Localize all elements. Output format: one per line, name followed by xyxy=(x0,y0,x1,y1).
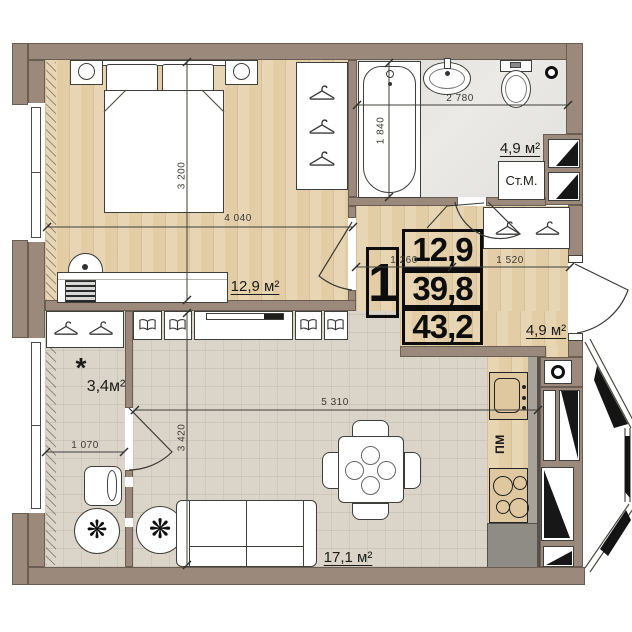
living-area-value: 17,1 м² xyxy=(324,549,373,566)
hallway-area-label: 4,9 м² xyxy=(522,322,570,339)
dim-bedroom-width: 4 040 xyxy=(213,213,263,224)
bedroom-area-label: 12,9 м² xyxy=(218,278,292,295)
floor-plan: Ст.М. 1 12,9 39,8 43,2 ❋ xyxy=(0,0,632,632)
bathroom-area-label: 4,9 м² xyxy=(496,140,544,157)
shaft-hatch-triangles xyxy=(544,141,578,565)
dim-bathroom-width: 2 780 xyxy=(438,93,482,104)
living-area-label: 17,1 м² xyxy=(323,549,373,566)
dim-hall-segment-2: 1 520 xyxy=(490,255,530,266)
bathroom-area-value: 4,9 м² xyxy=(500,140,540,157)
bed-fold-lines xyxy=(104,90,224,112)
dimension-ticks xyxy=(42,58,574,569)
dimension-lines xyxy=(46,62,570,565)
dim-living-height: 3 420 xyxy=(177,416,188,460)
dim-living-width: 5 310 xyxy=(313,397,357,408)
dim-hall-segment-1: 1 260 xyxy=(385,255,423,266)
dim-bathtub-length: 1 840 xyxy=(376,109,387,153)
hallway-area-value: 4,9 м² xyxy=(526,322,566,339)
bedroom-area-value: 12,9 м² xyxy=(231,278,280,295)
plan-linework xyxy=(0,0,632,632)
stamp-leader-line xyxy=(427,203,484,228)
dim-balcony-width: 1 070 xyxy=(64,440,106,451)
dishwasher-label: ПМ xyxy=(493,429,507,459)
dim-bedroom-height: 3 200 xyxy=(177,154,188,198)
balcony-note-asterisk: * xyxy=(72,352,90,384)
